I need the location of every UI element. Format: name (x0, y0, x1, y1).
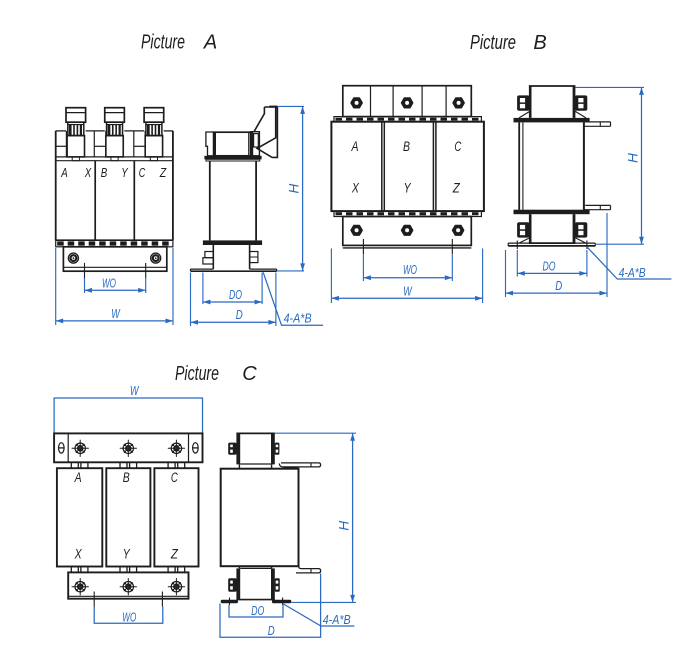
svg-text:X: X (74, 547, 83, 562)
svg-text:4-A*B: 4-A*B (323, 612, 351, 627)
svg-text:D: D (236, 307, 243, 322)
svg-text:DO: DO (229, 287, 242, 302)
svg-text:A: A (203, 32, 217, 54)
svg-text:WO: WO (403, 262, 417, 277)
svg-text:C: C (454, 139, 461, 154)
svg-text:DO: DO (251, 603, 264, 618)
svg-text:Y: Y (404, 180, 412, 195)
svg-text:H: H (287, 183, 302, 193)
svg-text:H: H (626, 153, 641, 163)
svg-text:A: A (60, 166, 67, 180)
svg-text:B: B (123, 470, 130, 485)
svg-text:4-A*B: 4-A*B (284, 311, 312, 326)
svg-text:W: W (403, 283, 413, 298)
svg-text:B: B (403, 139, 410, 154)
svg-text:W: W (130, 383, 140, 398)
svg-text:X: X (84, 166, 92, 180)
svg-text:C: C (139, 166, 146, 180)
svg-text:Picture: Picture (175, 363, 219, 385)
svg-text:Z: Z (170, 547, 178, 562)
svg-text:C: C (171, 470, 178, 485)
svg-text:Y: Y (123, 547, 131, 562)
svg-text:4-A*B: 4-A*B (619, 265, 646, 280)
svg-text:A: A (74, 470, 82, 485)
svg-text:H: H (337, 521, 352, 531)
svg-text:DO: DO (543, 258, 556, 273)
svg-text:WO: WO (102, 275, 116, 290)
svg-text:Picture: Picture (470, 32, 516, 54)
svg-text:W: W (111, 306, 121, 321)
svg-text:Z: Z (159, 166, 167, 180)
svg-text:D: D (555, 278, 562, 293)
svg-text:B: B (533, 32, 546, 54)
svg-text:B: B (101, 166, 108, 180)
svg-text:A: A (351, 139, 359, 154)
svg-text:D: D (268, 623, 275, 638)
svg-text:Z: Z (452, 180, 460, 195)
svg-text:X: X (351, 180, 360, 195)
svg-text:Picture: Picture (141, 32, 185, 54)
svg-text:C: C (242, 363, 257, 385)
svg-text:WO: WO (122, 609, 136, 624)
